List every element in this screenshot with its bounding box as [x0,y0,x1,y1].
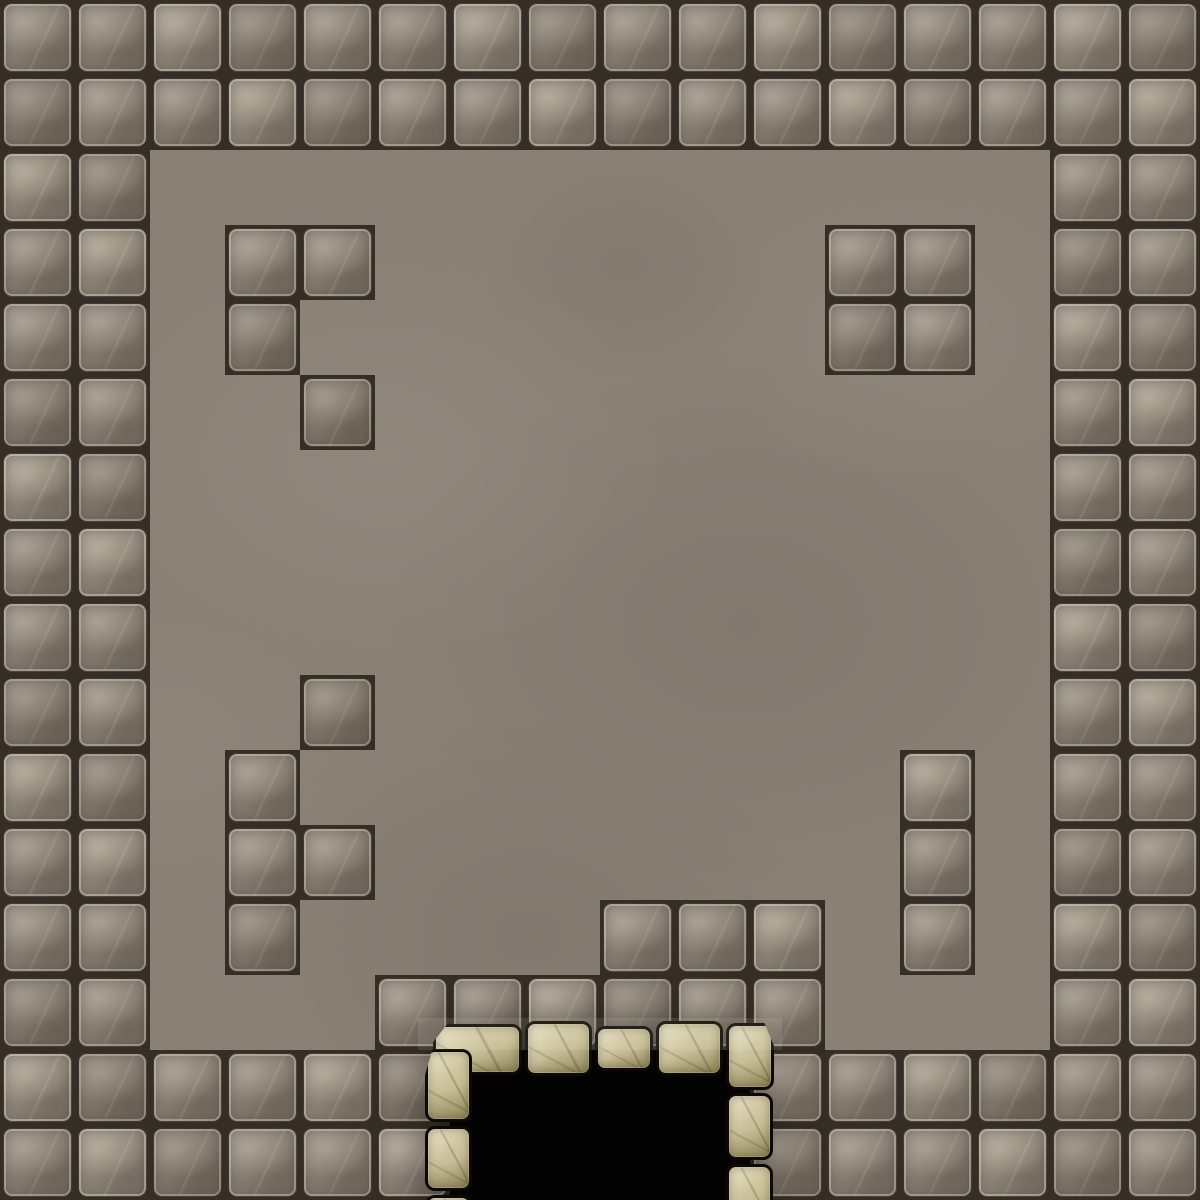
brick-stone-face [1053,978,1122,1047]
brick-stone-face [78,153,147,222]
brick-stone-face [303,828,372,897]
wall-brick-tile [0,300,75,375]
brick-stone-face [978,78,1047,147]
wall-brick-tile [300,75,375,150]
wall-brick-tile [1125,75,1200,150]
brick-stone-face [3,3,72,72]
brick-stone-face [153,1053,222,1122]
wall-tile-layer [0,0,1200,1200]
wall-brick-tile [900,1125,975,1200]
brick-stone-face [3,603,72,672]
wall-brick-tile [900,825,975,900]
wall-brick-tile [75,975,150,1050]
brick-stone-face [153,78,222,147]
wall-brick-tile [1050,450,1125,525]
brick-stone-face [1053,3,1122,72]
wall-brick-tile [1050,375,1125,450]
brick-stone-face [903,1053,972,1122]
brick-stone-face [3,753,72,822]
brick-stone-face [3,153,72,222]
brick-stone-face [1128,78,1197,147]
wall-brick-tile [75,375,150,450]
wall-brick-tile [600,0,675,75]
brick-stone-face [3,78,72,147]
wall-brick-tile [225,1050,300,1125]
brick-stone-face [3,303,72,372]
wall-brick-tile [1125,825,1200,900]
wall-brick-tile [1050,300,1125,375]
brick-stone-face [78,3,147,72]
brick-stone-face [603,3,672,72]
wall-brick-tile [1050,750,1125,825]
wall-brick-tile [0,900,75,975]
brick-stone-face [3,978,72,1047]
wall-brick-tile [1050,1050,1125,1125]
brick-stone-face [303,1128,372,1197]
wall-brick-tile [225,75,300,150]
wall-brick-tile [600,900,675,975]
brick-stone-face [228,228,297,297]
wall-brick-tile [1125,900,1200,975]
wall-brick-tile [300,0,375,75]
brick-stone-face [978,3,1047,72]
brick-stone-face [1128,978,1197,1047]
brick-stone-face [1053,453,1122,522]
wall-brick-tile [225,900,300,975]
wall-brick-tile [825,1125,900,1200]
brick-stone-face [1053,228,1122,297]
brick-stone-face [3,378,72,447]
wall-brick-tile [75,0,150,75]
wall-brick-tile [975,75,1050,150]
wall-brick-tile [600,75,675,150]
wall-brick-tile [1050,900,1125,975]
wall-brick-tile [750,900,825,975]
brick-stone-face [228,828,297,897]
brick-stone-face [1053,828,1122,897]
door-frame-stone-right-jamb [726,1093,773,1160]
brick-stone-face [903,78,972,147]
brick-stone-face [378,978,447,1047]
brick-stone-face [828,3,897,72]
brick-stone-face [1128,678,1197,747]
wall-brick-tile [300,1050,375,1125]
door-frame-stone-left-jamb [425,1126,472,1191]
brick-stone-face [903,228,972,297]
brick-stone-face [228,3,297,72]
wall-brick-tile [1125,525,1200,600]
wall-brick-tile [75,225,150,300]
brick-stone-face [78,78,147,147]
brick-stone-face [3,678,72,747]
wall-brick-tile [750,0,825,75]
wall-brick-tile [1125,300,1200,375]
brick-stone-face [1053,303,1122,372]
wall-brick-tile [75,525,150,600]
brick-stone-face [978,1053,1047,1122]
wall-brick-tile [825,225,900,300]
brick-stone-face [1053,903,1122,972]
wall-brick-tile [0,750,75,825]
wall-brick-tile [1050,75,1125,150]
brick-stone-face [453,3,522,72]
brick-stone-face [228,1128,297,1197]
wall-brick-tile [0,525,75,600]
brick-stone-face [1128,303,1197,372]
brick-stone-face [78,603,147,672]
brick-stone-face [303,3,372,72]
brick-stone-face [228,753,297,822]
wall-brick-tile [900,1050,975,1125]
brick-stone-face [1128,1128,1197,1197]
brick-stone-face [828,1128,897,1197]
wall-brick-tile [1050,975,1125,1050]
brick-stone-face [678,903,747,972]
brick-stone-face [1053,1053,1122,1122]
brick-stone-face [1128,3,1197,72]
brick-stone-face [603,903,672,972]
brick-stone-face [1053,1128,1122,1197]
brick-stone-face [1053,153,1122,222]
wall-brick-tile [450,0,525,75]
brick-stone-face [3,528,72,597]
wall-brick-tile [225,750,300,825]
wall-brick-tile [150,75,225,150]
wall-brick-tile [900,900,975,975]
wall-brick-tile [900,0,975,75]
wall-brick-tile [1125,750,1200,825]
dungeon-map-viewport[interactable] [0,0,1200,1200]
brick-stone-face [1053,678,1122,747]
wall-brick-tile [1125,150,1200,225]
wall-brick-tile [75,150,150,225]
brick-stone-face [303,228,372,297]
brick-stone-face [78,678,147,747]
wall-brick-tile [225,225,300,300]
wall-brick-tile [825,0,900,75]
door-frame-stone-lintel [595,1026,653,1071]
wall-brick-tile [75,675,150,750]
brick-stone-face [1128,153,1197,222]
wall-brick-tile [300,1125,375,1200]
wall-brick-tile [150,1050,225,1125]
brick-stone-face [1053,528,1122,597]
wall-brick-tile [0,0,75,75]
wall-brick-tile [1050,600,1125,675]
wall-brick-tile [1125,675,1200,750]
brick-stone-face [1128,228,1197,297]
wall-brick-tile [675,75,750,150]
wall-brick-tile [1125,1050,1200,1125]
wall-brick-tile [1050,525,1125,600]
wall-brick-tile [1125,975,1200,1050]
wall-brick-tile [300,375,375,450]
wall-brick-tile [1050,675,1125,750]
wall-brick-tile [450,75,525,150]
brick-stone-face [1128,453,1197,522]
brick-stone-face [603,78,672,147]
wall-brick-tile [900,75,975,150]
brick-stone-face [78,978,147,1047]
wall-brick-tile [1125,0,1200,75]
wall-brick-tile [150,0,225,75]
brick-stone-face [753,3,822,72]
brick-stone-face [3,453,72,522]
brick-stone-face [1128,903,1197,972]
wall-brick-tile [75,600,150,675]
brick-stone-face [303,378,372,447]
wall-brick-tile [0,675,75,750]
wall-brick-tile [0,225,75,300]
wall-brick-tile [75,75,150,150]
brick-stone-face [1128,1053,1197,1122]
wall-brick-tile [150,1125,225,1200]
brick-stone-face [153,1128,222,1197]
brick-stone-face [528,3,597,72]
wall-brick-tile [0,825,75,900]
brick-stone-face [1128,603,1197,672]
wall-brick-tile [300,675,375,750]
wall-brick-tile [75,450,150,525]
wall-brick-tile [75,1050,150,1125]
brick-stone-face [78,453,147,522]
wall-brick-tile [0,600,75,675]
wall-brick-tile [75,1125,150,1200]
brick-stone-face [678,3,747,72]
brick-stone-face [903,903,972,972]
brick-stone-face [1053,603,1122,672]
wall-brick-tile [975,1125,1050,1200]
wall-brick-tile [750,75,825,150]
brick-stone-face [228,1053,297,1122]
brick-stone-face [1128,378,1197,447]
wall-brick-tile [0,1050,75,1125]
brick-stone-face [228,903,297,972]
wall-brick-tile [825,1050,900,1125]
wall-brick-tile [75,825,150,900]
wall-brick-tile [1125,450,1200,525]
brick-stone-face [3,1053,72,1122]
brick-stone-face [228,78,297,147]
door-frame-stone-lintel [656,1021,723,1076]
wall-brick-tile [1050,1125,1125,1200]
door-frame-stone-left-jamb [425,1049,472,1122]
brick-stone-face [753,78,822,147]
brick-stone-face [528,78,597,147]
brick-stone-face [753,903,822,972]
wall-brick-tile [1125,600,1200,675]
wall-brick-tile [525,0,600,75]
brick-stone-face [78,228,147,297]
wall-brick-tile [675,900,750,975]
brick-stone-face [78,753,147,822]
brick-stone-face [903,828,972,897]
wall-brick-tile [225,1125,300,1200]
wall-brick-tile [300,825,375,900]
brick-stone-face [3,903,72,972]
brick-stone-face [153,3,222,72]
wall-brick-tile [975,0,1050,75]
brick-stone-face [78,1053,147,1122]
wall-brick-tile [225,0,300,75]
brick-stone-face [828,228,897,297]
brick-stone-face [978,1128,1047,1197]
wall-brick-tile [375,75,450,150]
wall-brick-tile [975,1050,1050,1125]
brick-stone-face [78,828,147,897]
brick-stone-face [3,1128,72,1197]
brick-stone-face [78,528,147,597]
wall-brick-tile [75,900,150,975]
wall-brick-tile [0,375,75,450]
brick-stone-face [1053,753,1122,822]
brick-stone-face [303,1053,372,1122]
wall-brick-tile [0,150,75,225]
wall-brick-tile [0,75,75,150]
wall-brick-tile [225,300,300,375]
door-frame-stone-lintel [525,1021,592,1076]
brick-stone-face [1128,753,1197,822]
brick-stone-face [303,78,372,147]
wall-brick-tile [525,75,600,150]
wall-brick-tile [75,300,150,375]
wall-brick-tile [900,750,975,825]
wall-brick-tile [75,750,150,825]
door-frame-stone-right-jamb [726,1164,773,1200]
wall-brick-tile [900,300,975,375]
brick-stone-face [1053,378,1122,447]
brick-stone-face [78,1128,147,1197]
brick-stone-face [3,828,72,897]
brick-stone-face [228,303,297,372]
brick-stone-face [78,903,147,972]
wall-brick-tile [0,450,75,525]
door-frame-stone-lintel [726,1023,774,1090]
wall-brick-tile [1125,1125,1200,1200]
brick-stone-face [828,78,897,147]
brick-stone-face [78,378,147,447]
brick-stone-face [303,678,372,747]
door-frame-stone-left-jamb [425,1195,472,1200]
brick-stone-face [1128,828,1197,897]
wall-brick-tile [900,225,975,300]
brick-stone-face [1053,78,1122,147]
brick-stone-face [378,78,447,147]
wall-brick-tile [1050,225,1125,300]
brick-stone-face [903,753,972,822]
wall-brick-tile [825,75,900,150]
brick-stone-face [78,303,147,372]
wall-brick-tile [1050,150,1125,225]
wall-brick-tile [0,975,75,1050]
brick-stone-face [828,303,897,372]
brick-stone-face [678,78,747,147]
wall-brick-tile [1050,825,1125,900]
wall-brick-tile [675,0,750,75]
brick-stone-face [828,1053,897,1122]
wall-brick-tile [825,300,900,375]
wall-brick-tile [0,1125,75,1200]
brick-stone-face [903,3,972,72]
brick-stone-face [1128,528,1197,597]
wall-brick-tile [1125,375,1200,450]
brick-stone-face [903,303,972,372]
brick-stone-face [453,78,522,147]
wall-brick-tile [300,225,375,300]
doorway-opening[interactable] [466,1068,730,1200]
wall-brick-tile [375,0,450,75]
wall-brick-tile [225,825,300,900]
brick-stone-face [3,228,72,297]
brick-stone-face [378,3,447,72]
wall-brick-tile [1125,225,1200,300]
brick-stone-face [903,1128,972,1197]
wall-brick-tile [1050,0,1125,75]
